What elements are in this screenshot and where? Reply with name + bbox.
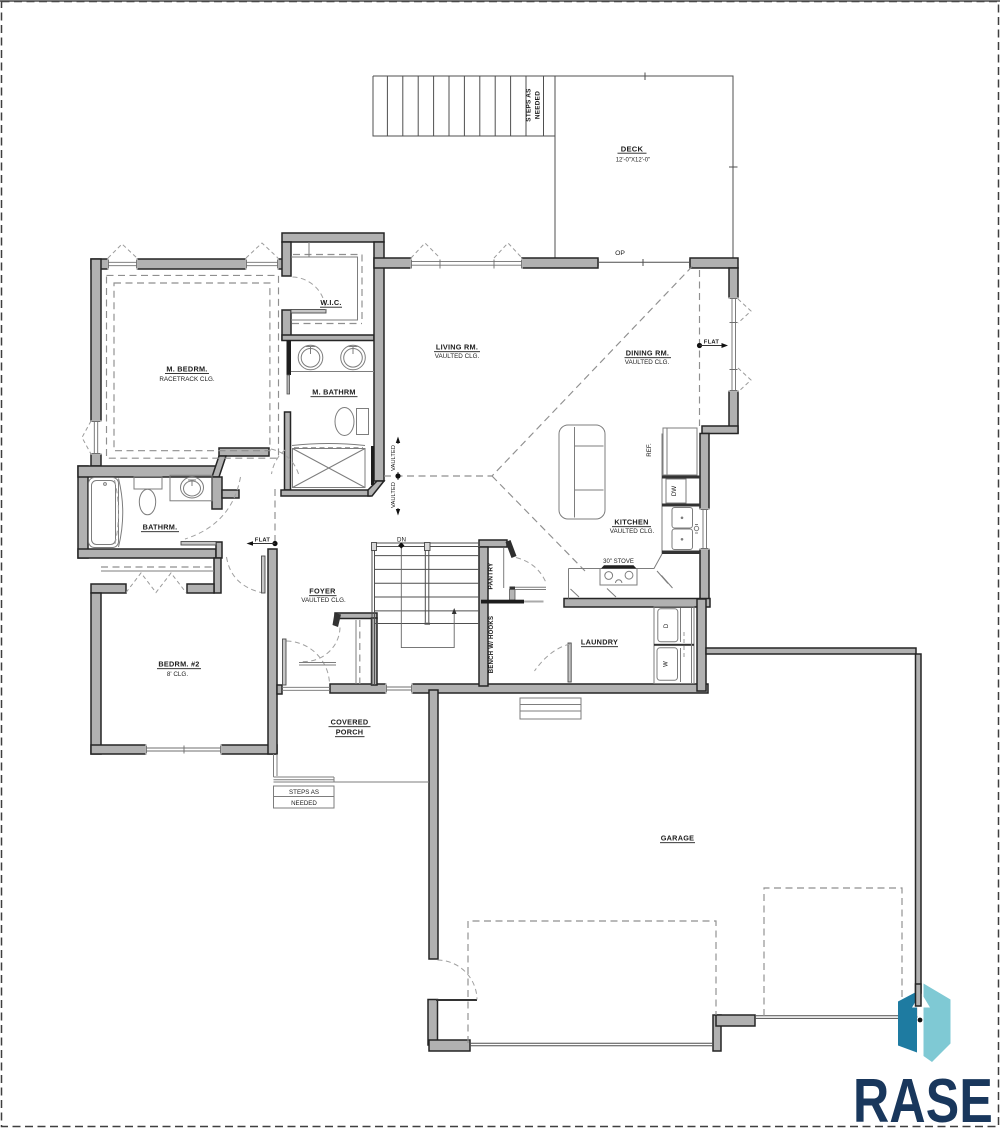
svg-text:12'-0"X12'-0": 12'-0"X12'-0": [616, 158, 651, 164]
svg-text:VAULTED: VAULTED: [391, 445, 397, 471]
svg-text:STEPS AS: STEPS AS: [289, 789, 319, 796]
svg-text:M. BATHRM: M. BATHRM: [312, 388, 355, 397]
svg-text:W: W: [664, 661, 670, 667]
svg-text:VAULTED: VAULTED: [391, 482, 397, 508]
svg-text:BEDRM. #2: BEDRM. #2: [158, 660, 199, 669]
svg-text:8' CLG.: 8' CLG.: [167, 671, 188, 678]
svg-text:REF.: REF.: [646, 443, 653, 457]
svg-text:PORCH: PORCH: [336, 728, 364, 737]
svg-text:RASE: RASE: [853, 1066, 993, 1128]
svg-text:DN: DN: [397, 537, 406, 544]
svg-text:PANTRY: PANTRY: [488, 562, 495, 590]
svg-text:VAULTED CLG.: VAULTED CLG.: [301, 597, 346, 604]
svg-text:LIVING RM.: LIVING RM.: [436, 343, 478, 352]
svg-text:GARAGE: GARAGE: [661, 834, 695, 843]
svg-text:BATHRM.: BATHRM.: [143, 523, 178, 532]
svg-text:VAULTED CLG.: VAULTED CLG.: [625, 359, 670, 366]
svg-text:BENCH W/ HOOKS: BENCH W/ HOOKS: [489, 616, 495, 674]
svg-text:30" STOVE: 30" STOVE: [603, 559, 634, 565]
svg-text:STEPS AS: STEPS AS: [526, 88, 533, 122]
svg-text:NEEDED: NEEDED: [535, 91, 542, 119]
svg-text:LAUNDRY: LAUNDRY: [581, 638, 618, 647]
svg-text:M. BEDRM.: M. BEDRM.: [166, 365, 207, 374]
svg-text:VAULTED CLG.: VAULTED CLG.: [435, 353, 480, 360]
svg-text:RACETRACK CLG.: RACETRACK CLG.: [159, 376, 215, 383]
svg-text:NEEDED: NEEDED: [291, 800, 317, 807]
svg-text:DW: DW: [671, 486, 678, 496]
svg-text:FOYER: FOYER: [309, 587, 336, 596]
svg-text:OP: OP: [615, 250, 625, 257]
svg-text:DECK: DECK: [621, 145, 644, 154]
svg-text:DINING RM.: DINING RM.: [626, 349, 669, 358]
svg-text:KITCHEN: KITCHEN: [614, 518, 648, 527]
svg-text:D: D: [664, 623, 670, 628]
svg-text:COVERED: COVERED: [331, 718, 369, 727]
svg-text:FLAT: FLAT: [255, 538, 271, 544]
svg-text:VAULTED CLG.: VAULTED CLG.: [610, 528, 655, 535]
svg-text:W.I.C.: W.I.C.: [320, 298, 341, 307]
svg-text:FLAT: FLAT: [704, 340, 720, 346]
